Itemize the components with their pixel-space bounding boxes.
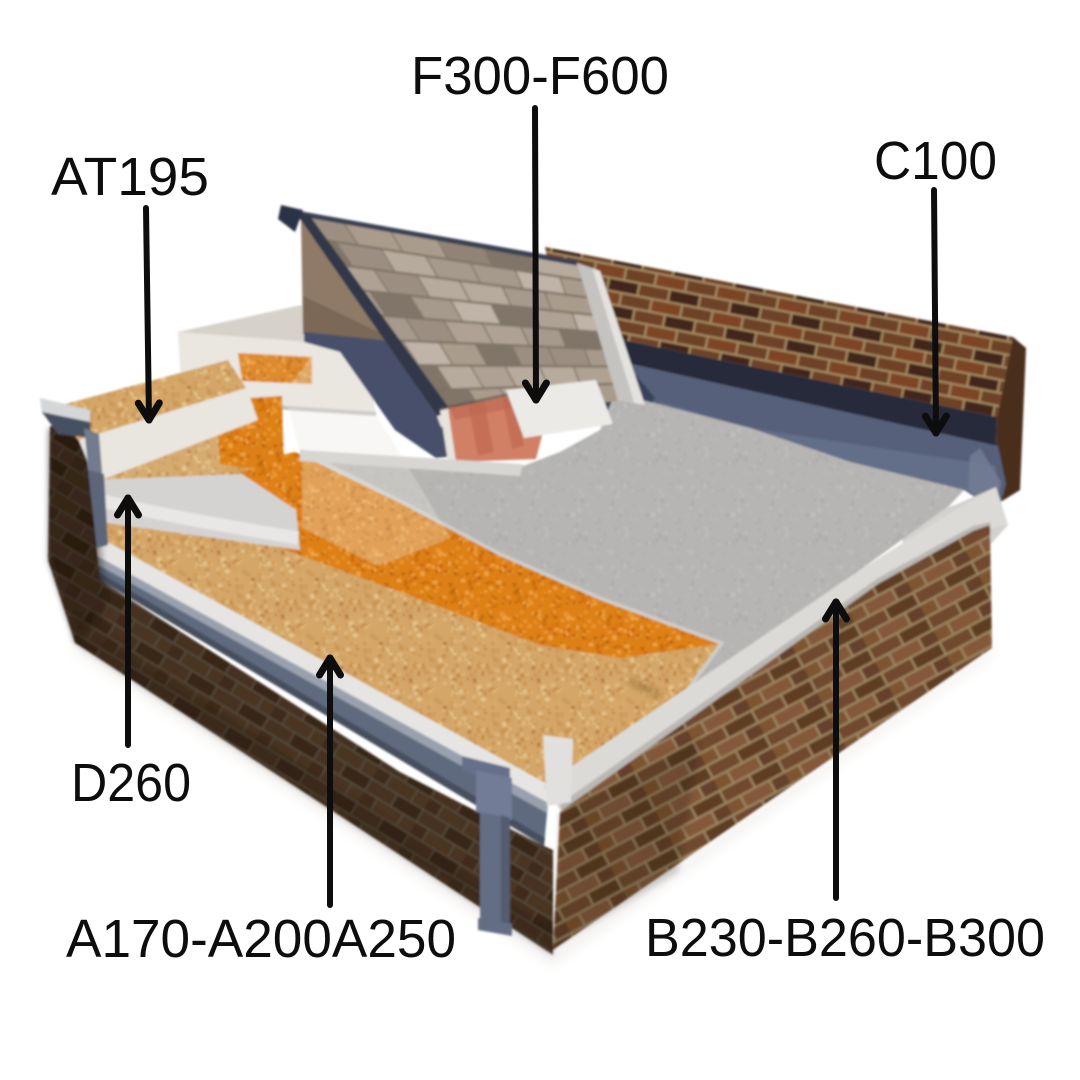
svg-text:B230-B260-B300: B230-B260-B300 — [645, 908, 1045, 968]
svg-text:AT195: AT195 — [51, 147, 209, 207]
svg-text:C100: C100 — [874, 131, 997, 191]
svg-text:A170-A200A250: A170-A200A250 — [66, 909, 456, 969]
svg-text:D260: D260 — [71, 753, 191, 813]
svg-text:F300-F600: F300-F600 — [411, 46, 669, 106]
